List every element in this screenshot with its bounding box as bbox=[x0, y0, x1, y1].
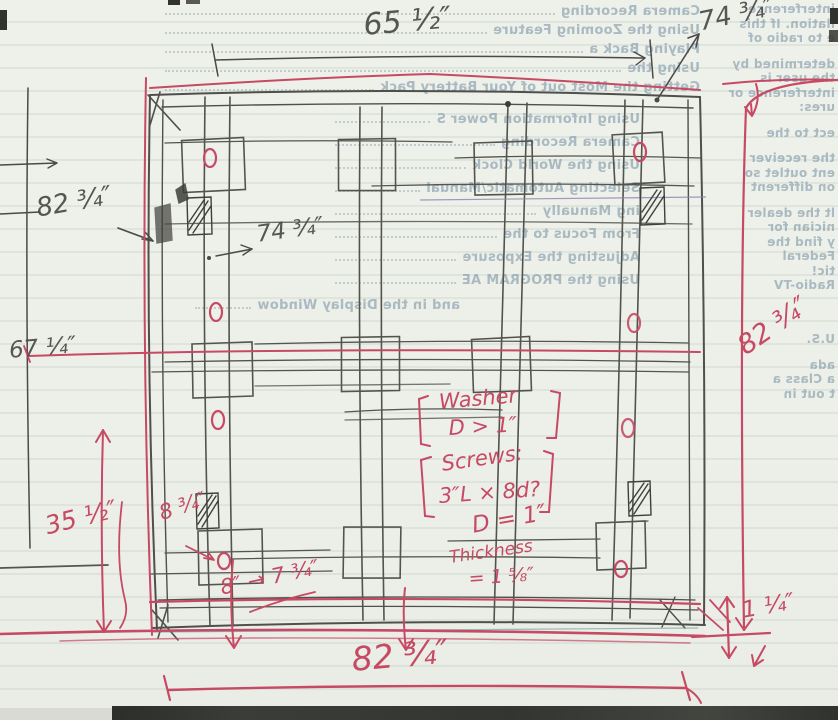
vertical-studs bbox=[204, 97, 643, 626]
pencil-dimension-lines bbox=[0, 34, 699, 548]
hatched-blocks bbox=[155, 184, 665, 529]
hand-sketch bbox=[0, 0, 838, 720]
washer-note-line2: D > 1″ bbox=[448, 412, 517, 440]
scan-edge-mark bbox=[830, 8, 838, 24]
scan-edge-mark bbox=[0, 10, 7, 30]
scan-bottom-band bbox=[112, 706, 838, 720]
scanned-sketch-page: Camera Recording Using the Zooming Featu… bbox=[0, 0, 838, 720]
scan-edge-mark bbox=[186, 0, 200, 4]
scan-edge-mark bbox=[829, 30, 838, 42]
red-ink-lines bbox=[0, 74, 838, 703]
thickness-note-line2: = 1 ⅝″ bbox=[468, 563, 535, 590]
scan-edge-mark bbox=[168, 0, 180, 5]
page-bottom-strip bbox=[0, 708, 112, 720]
